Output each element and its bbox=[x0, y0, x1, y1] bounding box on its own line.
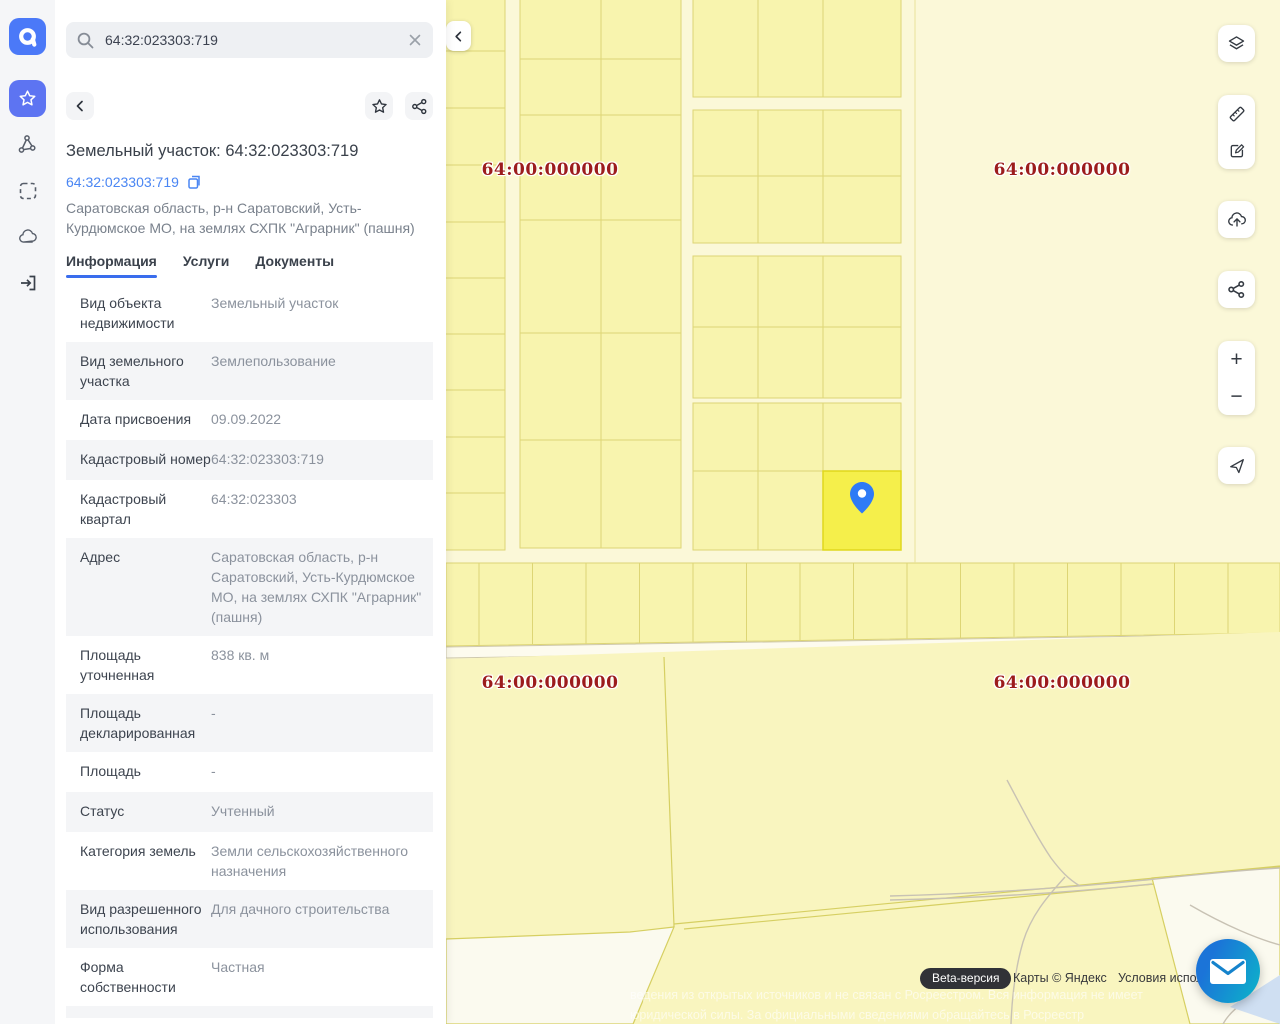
cloud-icon bbox=[17, 226, 39, 248]
row-value: 64:32:023303:719 bbox=[211, 440, 433, 480]
upload-button[interactable] bbox=[1218, 201, 1255, 238]
row-label: Вид разрешенного использования bbox=[66, 890, 211, 948]
zoom-controls: + − bbox=[1218, 341, 1255, 415]
share-object-button[interactable] bbox=[405, 92, 433, 120]
map-canvas[interactable]: + − Beta-версия Карты © Яндекс Условия и… bbox=[446, 0, 1280, 1024]
chevron-left-icon bbox=[452, 30, 465, 43]
envelope-icon bbox=[1209, 956, 1247, 986]
sidebar-item-area-select[interactable] bbox=[9, 172, 46, 209]
logo-a-icon bbox=[17, 26, 39, 48]
sidebar-item-cloud[interactable] bbox=[9, 218, 46, 255]
favorite-button[interactable] bbox=[365, 92, 393, 120]
sign-in-icon bbox=[18, 273, 38, 293]
sidebar-item-favorites[interactable] bbox=[9, 80, 46, 117]
row-value: Частная bbox=[211, 948, 433, 1006]
row-value: Земли сельскохозяйственного назначения bbox=[211, 832, 433, 890]
info-table: Вид объекта недвижимостиЗемельный участо… bbox=[66, 284, 433, 1006]
row-value: Саратовская область, р-н Саратовский, Ус… bbox=[211, 538, 433, 636]
tab-0[interactable]: Информация bbox=[66, 253, 157, 278]
row-value: 838 кв. м bbox=[211, 636, 433, 694]
zoom-in-button[interactable]: + bbox=[1218, 341, 1255, 378]
clear-search-icon[interactable] bbox=[407, 32, 423, 48]
row-value: - bbox=[211, 694, 433, 752]
table-row: Площадь уточненная838 кв. м bbox=[66, 636, 433, 694]
row-value: 09.09.2022 bbox=[211, 400, 433, 440]
table-row: Кадастровый номер64:32:023303:719 bbox=[66, 440, 433, 480]
copy-icon[interactable] bbox=[186, 174, 202, 190]
row-label: Кадастровый квартал bbox=[66, 480, 211, 538]
table-row-partial bbox=[66, 1006, 433, 1018]
row-label: Площадь декларированная bbox=[66, 694, 211, 752]
polygon-icon bbox=[17, 134, 38, 155]
map-copyright[interactable]: Карты © Яндекс bbox=[1013, 971, 1107, 985]
row-label: Кадастровый номер bbox=[66, 440, 211, 480]
edit-icon bbox=[1227, 141, 1247, 161]
layers-button[interactable] bbox=[1218, 25, 1255, 62]
watermark-line-2: юридической силы. За официальными сведен… bbox=[630, 1008, 1084, 1022]
back-button[interactable] bbox=[66, 92, 94, 120]
tab-1[interactable]: Услуги bbox=[183, 253, 230, 278]
search-bar bbox=[66, 22, 433, 58]
cadastral-number-text: 64:32:023303:719 bbox=[66, 174, 179, 190]
row-label: Вид земельного участка bbox=[66, 342, 211, 400]
edit-button[interactable] bbox=[1218, 132, 1255, 169]
row-value: - bbox=[211, 752, 433, 792]
ruler-icon bbox=[1227, 104, 1247, 124]
measure-button[interactable] bbox=[1218, 95, 1255, 132]
table-row: Площадь декларированная- bbox=[66, 694, 433, 752]
table-row: Вид объекта недвижимостиЗемельный участо… bbox=[66, 284, 433, 342]
tabs: ИнформацияУслугиДокументы bbox=[66, 253, 433, 278]
collapse-panel-button[interactable] bbox=[446, 21, 471, 51]
search-icon bbox=[76, 31, 95, 50]
table-row: Категория земельЗемли сельскохозяйственн… bbox=[66, 832, 433, 890]
table-row: СтатусУчтенный bbox=[66, 792, 433, 832]
cloud-upload-icon bbox=[1226, 209, 1248, 231]
row-label: Статус bbox=[66, 792, 211, 832]
detail-panel: Земельный участок: 64:32:023303:719 64:3… bbox=[55, 0, 446, 1024]
row-label: Дата присвоения bbox=[66, 400, 211, 440]
measure-edit-group bbox=[1218, 95, 1255, 169]
share-map-button[interactable] bbox=[1218, 271, 1255, 308]
app: Земельный участок: 64:32:023303:719 64:3… bbox=[0, 0, 1280, 1024]
locate-button[interactable] bbox=[1218, 447, 1255, 484]
row-label: Площадь уточненная bbox=[66, 636, 211, 694]
layers-icon bbox=[1226, 33, 1247, 54]
table-row: Вид разрешенного использованияДля дачног… bbox=[66, 890, 433, 948]
row-value: Землепользование bbox=[211, 342, 433, 400]
locate-icon bbox=[1227, 456, 1247, 476]
share-icon bbox=[411, 98, 428, 115]
watermark-line-1: ведения из открытых источников и не связ… bbox=[630, 988, 1143, 1002]
table-row: АдресСаратовская область, р-н Саратовски… bbox=[66, 538, 433, 636]
quarter-label: 64:00:000000 bbox=[482, 160, 619, 180]
row-value: 64:32:023303 bbox=[211, 480, 433, 538]
table-row: Дата присвоения09.09.2022 bbox=[66, 400, 433, 440]
zoom-out-button[interactable]: − bbox=[1218, 378, 1255, 415]
table-row: Кадастровый квартал64:32:023303 bbox=[66, 480, 433, 538]
tab-2[interactable]: Документы bbox=[255, 253, 334, 278]
chat-button[interactable] bbox=[1196, 939, 1260, 1003]
app-logo[interactable] bbox=[9, 18, 46, 55]
row-value: Земельный участок bbox=[211, 284, 433, 342]
share-icon bbox=[1227, 280, 1246, 299]
area-select-icon bbox=[18, 181, 38, 201]
page-title: Земельный участок: 64:32:023303:719 bbox=[66, 142, 433, 161]
map-pin-icon bbox=[848, 481, 876, 515]
star-icon bbox=[17, 88, 38, 109]
cadastral-number-link[interactable]: 64:32:023303:719 bbox=[66, 174, 433, 190]
quarter-label: 64:00:000000 bbox=[994, 673, 1131, 693]
quarter-label: 64:00:000000 bbox=[482, 673, 619, 693]
left-rail bbox=[0, 0, 55, 1024]
object-address: Саратовская область, р-н Саратовский, Ус… bbox=[66, 198, 433, 238]
row-label: Категория земель bbox=[66, 832, 211, 890]
row-label: Форма собственности bbox=[66, 948, 211, 1006]
table-row: Площадь- bbox=[66, 752, 433, 792]
panel-header bbox=[66, 92, 433, 120]
sidebar-item-sign-in[interactable] bbox=[9, 264, 46, 301]
chevron-left-icon bbox=[73, 99, 87, 113]
star-icon bbox=[370, 97, 389, 116]
row-label: Адрес bbox=[66, 538, 211, 636]
table-row: Вид земельного участкаЗемлепользование bbox=[66, 342, 433, 400]
sidebar-item-polygon[interactable] bbox=[9, 126, 46, 163]
table-row: Форма собственностиЧастная bbox=[66, 948, 433, 1006]
beta-badge: Beta-версия bbox=[920, 968, 1011, 989]
row-label: Площадь bbox=[66, 752, 211, 792]
row-label: Вид объекта недвижимости bbox=[66, 284, 211, 342]
row-value: Учтенный bbox=[211, 792, 433, 832]
search-input[interactable] bbox=[103, 31, 407, 49]
row-value: Для дачного строительства bbox=[211, 890, 433, 948]
quarter-label: 64:00:000000 bbox=[994, 160, 1131, 180]
